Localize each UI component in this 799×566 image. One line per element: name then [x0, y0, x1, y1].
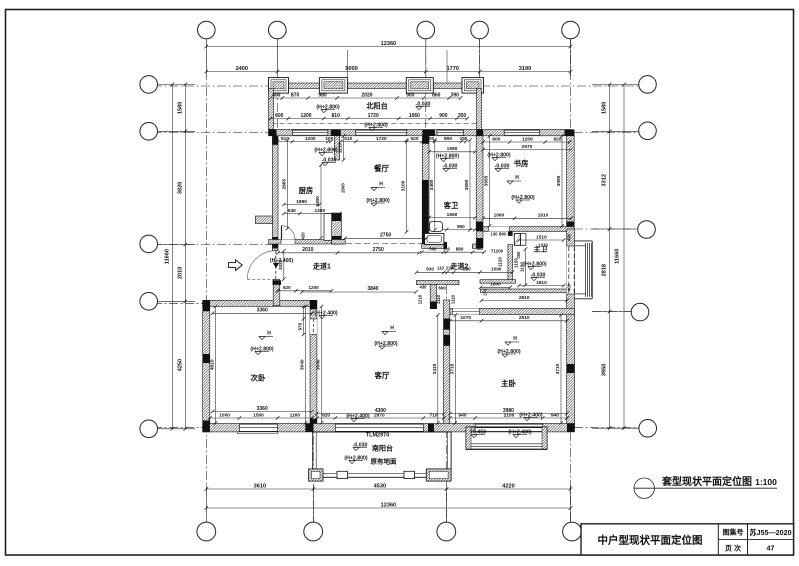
- svg-text:主卧: 主卧: [501, 378, 516, 388]
- svg-text:430: 430: [420, 285, 428, 290]
- svg-text:600: 600: [275, 113, 284, 119]
- svg-text:1580: 1580: [177, 102, 183, 114]
- svg-text:1810: 1810: [536, 280, 547, 286]
- svg-text:1500: 1500: [253, 412, 264, 418]
- svg-text:3090: 3090: [556, 175, 562, 186]
- svg-text:次卧: 次卧: [251, 373, 266, 383]
- svg-text:厨房: 厨房: [299, 186, 313, 195]
- svg-text:(H+2.800): (H+2.800): [316, 104, 339, 110]
- svg-text:1200: 1200: [305, 136, 316, 142]
- svg-text:890: 890: [499, 232, 507, 237]
- svg-text:100: 100: [443, 246, 450, 251]
- svg-text:3040: 3040: [316, 359, 322, 370]
- svg-text:1200: 1200: [300, 113, 311, 119]
- svg-text:940: 940: [551, 412, 559, 418]
- svg-text:980: 980: [318, 92, 327, 98]
- svg-text:2910: 2910: [519, 315, 530, 321]
- svg-text:2750: 2750: [380, 233, 391, 239]
- svg-text:3400: 3400: [429, 179, 435, 190]
- svg-text:390: 390: [451, 92, 460, 98]
- svg-text:主卫: 主卫: [534, 245, 548, 254]
- svg-text:(H+2.400): (H+2.400): [346, 413, 369, 419]
- svg-text:(H+2.400): (H+2.400): [314, 310, 337, 316]
- svg-text:-0.030: -0.030: [416, 101, 431, 107]
- svg-text:(H+2.800): (H+2.800): [436, 153, 459, 159]
- svg-text:(H+2.400): (H+2.400): [364, 122, 387, 128]
- svg-text:原有地面: 原有地面: [371, 457, 398, 466]
- svg-text:2020: 2020: [361, 92, 372, 98]
- svg-text:(H+2.800): (H+2.800): [523, 261, 546, 267]
- svg-text:400: 400: [567, 233, 572, 241]
- svg-text:110: 110: [437, 265, 444, 270]
- svg-text:2000: 2000: [341, 183, 346, 193]
- svg-text:H: H: [390, 326, 394, 332]
- svg-text:1550: 1550: [447, 146, 458, 152]
- svg-text:1000: 1000: [219, 412, 230, 418]
- svg-text:1060: 1060: [409, 113, 420, 119]
- svg-text:(H+2.800): (H+2.800): [314, 147, 337, 153]
- svg-text:2750: 2750: [373, 247, 384, 253]
- svg-text:书房: 书房: [514, 158, 529, 168]
- svg-text:3710: 3710: [555, 363, 561, 374]
- svg-text:1070: 1070: [460, 315, 471, 321]
- svg-text:客厅: 客厅: [374, 370, 390, 380]
- svg-text:12360: 12360: [381, 502, 397, 508]
- svg-text:-0.030: -0.030: [443, 163, 458, 169]
- svg-text:3650: 3650: [464, 179, 470, 190]
- svg-text:100: 100: [325, 136, 333, 142]
- svg-text:1200: 1200: [522, 136, 533, 142]
- svg-text:北阳台: 北阳台: [366, 101, 388, 110]
- svg-text:220: 220: [446, 265, 454, 270]
- svg-text:47: 47: [767, 544, 775, 553]
- svg-text:3650: 3650: [484, 175, 490, 186]
- svg-text:2010: 2010: [177, 267, 183, 279]
- svg-text:1770: 1770: [446, 66, 458, 72]
- svg-text:870: 870: [291, 92, 300, 98]
- svg-text:12360: 12360: [381, 41, 397, 47]
- svg-text:-0.030: -0.030: [322, 157, 337, 163]
- svg-text:2985: 2985: [282, 179, 288, 190]
- svg-text:客卫: 客卫: [443, 201, 458, 210]
- svg-text:TLM2970: TLM2970: [366, 433, 390, 439]
- svg-text:11660: 11660: [164, 249, 170, 264]
- svg-text:4220: 4220: [502, 483, 514, 489]
- svg-text:890: 890: [463, 267, 471, 272]
- svg-text:H: H: [379, 182, 383, 188]
- svg-text:1120: 1120: [498, 257, 503, 267]
- svg-text:走道1: 走道1: [313, 262, 331, 271]
- svg-text:餐厅: 餐厅: [373, 163, 389, 173]
- svg-text:300: 300: [426, 136, 434, 142]
- svg-text:520: 520: [410, 136, 418, 142]
- svg-text:130: 130: [491, 232, 499, 237]
- svg-text:(H+2.800): (H+2.800): [366, 198, 389, 204]
- svg-text:740: 740: [429, 247, 437, 252]
- svg-text:420: 420: [301, 232, 306, 240]
- svg-text:-0.030: -0.030: [495, 163, 510, 169]
- svg-text:4530: 4530: [374, 483, 386, 489]
- svg-text:400: 400: [567, 283, 572, 291]
- svg-text:(H+2.800): (H+2.800): [487, 152, 510, 158]
- svg-text:2100: 2100: [504, 412, 515, 418]
- svg-text:1090: 1090: [491, 267, 502, 272]
- svg-text:(H+2.800): (H+2.800): [511, 195, 534, 201]
- svg-text:1:100: 1:100: [755, 477, 777, 487]
- svg-text:(H+2.400): (H+2.400): [519, 412, 542, 418]
- svg-text:(H+2.800): (H+2.800): [374, 341, 397, 347]
- svg-text:5000: 5000: [345, 66, 357, 72]
- svg-text:4010: 4010: [210, 359, 216, 370]
- svg-text:930: 930: [426, 267, 434, 272]
- svg-text:H: H: [267, 331, 271, 337]
- svg-text:南阳台: 南阳台: [372, 444, 393, 453]
- svg-text:510: 510: [281, 136, 289, 142]
- svg-text:950: 950: [457, 224, 465, 229]
- svg-text:860: 860: [432, 92, 441, 98]
- svg-text:1580: 1580: [602, 102, 608, 114]
- svg-text:11660: 11660: [615, 249, 621, 264]
- svg-text:970: 970: [298, 322, 303, 330]
- svg-text:套型现状平面定位图: 套型现状平面定位图: [661, 475, 752, 488]
- svg-text:(H+2.400): (H+2.400): [508, 429, 531, 435]
- svg-text:图集号: 图集号: [723, 528, 744, 537]
- svg-text:2970: 2970: [374, 412, 385, 418]
- svg-text:1910: 1910: [538, 213, 549, 219]
- svg-text:900: 900: [444, 136, 452, 142]
- svg-text:620: 620: [322, 412, 330, 418]
- svg-text:苏J55—2020: 苏J55—2020: [749, 528, 791, 537]
- svg-text:H: H: [515, 175, 519, 181]
- svg-text:1020: 1020: [278, 259, 283, 270]
- svg-text:600: 600: [438, 286, 446, 291]
- svg-text:1510: 1510: [536, 234, 547, 240]
- svg-text:(H+2.800): (H+2.800): [344, 455, 367, 461]
- svg-text:+0.450: +0.450: [470, 429, 486, 435]
- svg-text:页 次: 页 次: [725, 544, 741, 553]
- svg-text:2010: 2010: [302, 247, 313, 253]
- svg-text:390: 390: [477, 246, 484, 251]
- svg-text:3190: 3190: [519, 66, 531, 72]
- svg-text:940: 940: [458, 412, 466, 418]
- svg-text:3040: 3040: [300, 359, 306, 370]
- svg-text:中户型现状平面定位图: 中户型现状平面定位图: [598, 534, 703, 547]
- svg-text:1720: 1720: [376, 136, 387, 142]
- svg-text:170: 170: [483, 288, 488, 296]
- svg-text:1200: 1200: [308, 285, 319, 290]
- svg-text:-0.030: -0.030: [353, 442, 368, 448]
- svg-text:-0.030: -0.030: [531, 272, 546, 278]
- svg-text:3820: 3820: [177, 182, 183, 194]
- svg-text:540: 540: [288, 208, 296, 214]
- svg-text:1350: 1350: [314, 208, 325, 214]
- svg-text:1210: 1210: [338, 142, 343, 153]
- svg-text:3950: 3950: [602, 364, 608, 376]
- svg-text:400: 400: [272, 92, 281, 98]
- svg-text:900: 900: [439, 113, 448, 119]
- svg-text:3710: 3710: [450, 363, 456, 374]
- svg-text:3100: 3100: [401, 180, 407, 191]
- svg-text:3610: 3610: [254, 483, 266, 489]
- svg-text:3312: 3312: [602, 174, 608, 186]
- svg-text:810: 810: [332, 113, 341, 119]
- svg-text:1110: 1110: [436, 294, 441, 304]
- svg-text:4250: 4250: [177, 359, 183, 371]
- svg-text:2818: 2818: [602, 264, 608, 276]
- svg-text:3400: 3400: [315, 196, 321, 207]
- svg-text:880: 880: [456, 247, 464, 252]
- svg-text:2810: 2810: [519, 295, 530, 301]
- svg-text:(H+2.800): (H+2.800): [497, 349, 520, 355]
- svg-text:1060: 1060: [494, 213, 505, 219]
- svg-text:620: 620: [283, 285, 291, 290]
- svg-text:1150: 1150: [520, 262, 525, 272]
- svg-text:3410: 3410: [432, 363, 438, 374]
- svg-text:3360: 3360: [257, 406, 268, 412]
- svg-text:1000: 1000: [490, 282, 501, 288]
- svg-text:71200: 71200: [491, 249, 504, 254]
- svg-text:1720: 1720: [368, 113, 379, 119]
- svg-text:1890: 1890: [296, 199, 307, 205]
- svg-text:900: 900: [492, 136, 500, 142]
- svg-text:300: 300: [516, 251, 521, 259]
- svg-text:710: 710: [430, 412, 438, 418]
- svg-text:1110: 1110: [451, 294, 456, 304]
- svg-text:1210: 1210: [418, 294, 423, 304]
- svg-text:510: 510: [344, 136, 352, 142]
- svg-text:3360: 3360: [257, 308, 268, 314]
- svg-text:(H+2.800): (H+2.800): [250, 346, 273, 352]
- svg-text:150: 150: [460, 136, 468, 142]
- svg-text:2970: 2970: [522, 144, 533, 150]
- svg-text:350: 350: [458, 113, 467, 119]
- svg-text:3840: 3840: [367, 286, 378, 292]
- svg-text:900: 900: [406, 92, 415, 98]
- svg-text:2400: 2400: [236, 66, 248, 72]
- svg-text:1550: 1550: [447, 212, 458, 218]
- svg-text:H: H: [513, 336, 517, 342]
- svg-text:1160: 1160: [290, 412, 301, 418]
